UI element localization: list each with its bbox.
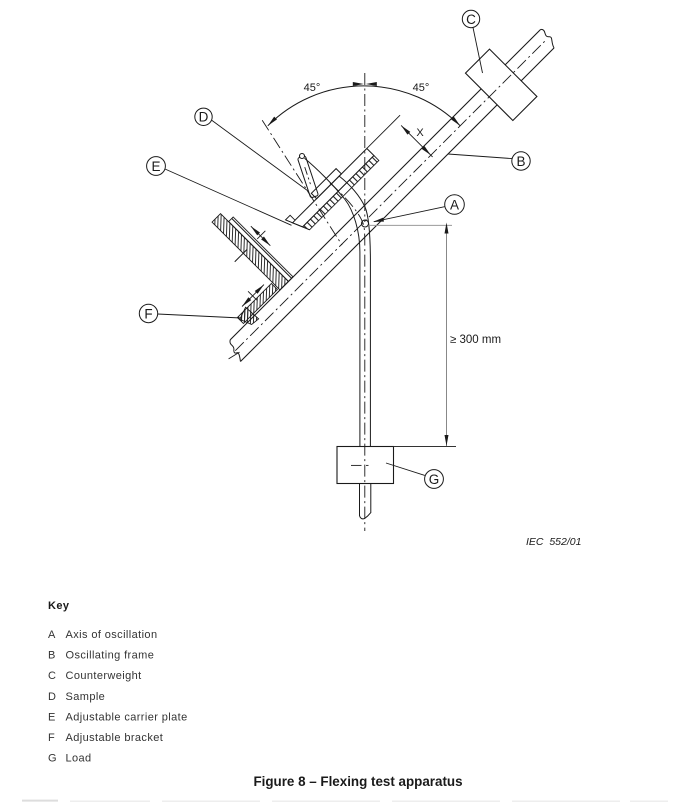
svg-text:G: G <box>48 753 57 765</box>
svg-text:Sample: Sample <box>66 691 106 703</box>
svg-text:45°: 45° <box>413 82 430 94</box>
svg-text:X: X <box>416 127 424 139</box>
svg-text:G: G <box>429 472 440 487</box>
svg-text:≥ 300 mm: ≥ 300 mm <box>450 334 501 346</box>
svg-text:Adjustable carrier plate: Adjustable carrier plate <box>66 711 188 723</box>
svg-text:Adjustable bracket: Adjustable bracket <box>66 732 164 744</box>
svg-text:Figure 8 – Flexing test appara: Figure 8 – Flexing test apparatus <box>253 774 462 789</box>
svg-text:B: B <box>48 650 56 662</box>
svg-text:E: E <box>48 711 56 723</box>
svg-text:D: D <box>199 110 209 125</box>
svg-text:C: C <box>466 12 476 27</box>
svg-text:Counterweight: Counterweight <box>66 670 142 682</box>
svg-text:C: C <box>48 670 56 682</box>
svg-text:D: D <box>48 691 56 703</box>
svg-text:Oscillating frame: Oscillating frame <box>66 650 155 662</box>
svg-text:E: E <box>151 159 160 174</box>
svg-text:F: F <box>144 306 152 321</box>
svg-text:Axis of oscillation: Axis of oscillation <box>66 629 158 641</box>
svg-text:45°: 45° <box>304 82 321 94</box>
svg-text:Key: Key <box>48 600 70 612</box>
svg-text:IEC 552/01: IEC 552/01 <box>526 536 581 548</box>
svg-text:F: F <box>48 732 55 744</box>
svg-text:A: A <box>450 197 459 212</box>
svg-text:Load: Load <box>66 753 92 765</box>
svg-text:A: A <box>48 629 56 641</box>
svg-text:B: B <box>516 154 525 169</box>
